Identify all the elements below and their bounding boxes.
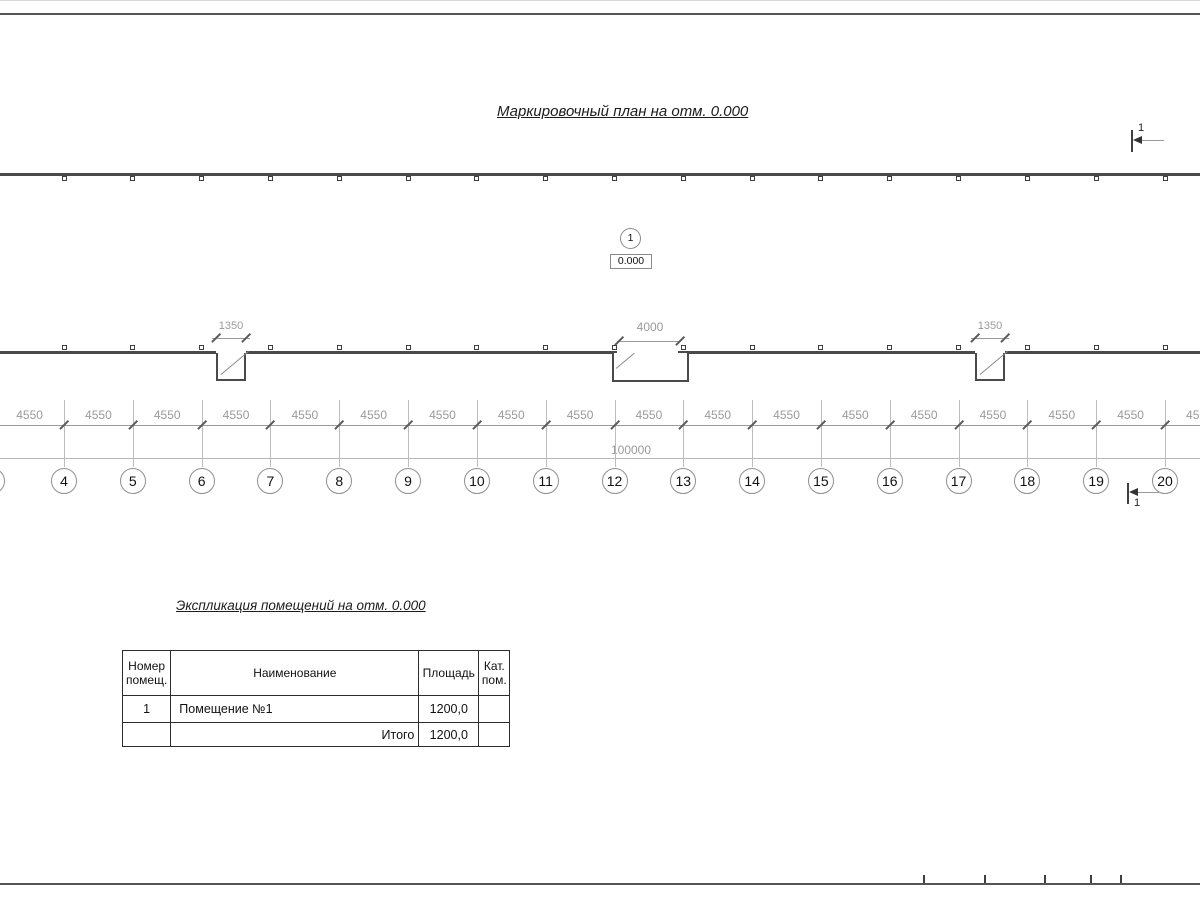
bay-dimension-label: 4550 bbox=[352, 408, 396, 422]
axis-extension-line bbox=[1027, 400, 1028, 467]
axis-extension-line bbox=[683, 400, 684, 467]
column-mark-top bbox=[62, 176, 67, 181]
column-mark-top bbox=[750, 176, 755, 181]
bay-dimension-label: 4550 bbox=[8, 408, 52, 422]
bottom-wall-segment bbox=[678, 351, 975, 354]
bay-dimension-label: 4550 bbox=[833, 408, 877, 422]
axis-bubble: 7 bbox=[257, 468, 283, 494]
axis-extension-line bbox=[477, 400, 478, 467]
cell-empty bbox=[123, 723, 171, 747]
opening-1-dim-label: 1350 bbox=[211, 320, 251, 332]
cell-room-name: Помещение №1 bbox=[171, 696, 419, 723]
axis-bubble: 9 bbox=[395, 468, 421, 494]
bay-dimension-label: 4550 bbox=[696, 408, 740, 422]
top-wall bbox=[0, 173, 1200, 176]
bay-dimension-label: 4550 bbox=[145, 408, 189, 422]
column-mark-top bbox=[268, 176, 273, 181]
bottom-wall-segment bbox=[246, 351, 617, 354]
header-area: Площадь bbox=[419, 651, 479, 696]
bay-dimension-label: 4550 bbox=[76, 408, 120, 422]
frame-bottom-line bbox=[0, 883, 1200, 885]
axis-extension-line bbox=[202, 400, 203, 467]
bottom-wall-segment bbox=[1005, 351, 1200, 354]
column-mark-bottom bbox=[268, 345, 273, 350]
axis-extension-line bbox=[408, 400, 409, 467]
axis-bubble: 18 bbox=[1014, 468, 1040, 494]
drawing-sheet: Маркировочный план на отм. 0.000 1 1 0.0… bbox=[0, 0, 1200, 900]
axis-extension-line bbox=[615, 400, 616, 467]
bay-dimension-label: 4550 bbox=[489, 408, 533, 422]
axis-bubble: 13 bbox=[670, 468, 696, 494]
column-mark-bottom bbox=[543, 345, 548, 350]
axis-extension-line bbox=[546, 400, 547, 467]
axis-extension-line bbox=[339, 400, 340, 467]
column-mark-bottom bbox=[406, 345, 411, 350]
axis-extension-line bbox=[959, 400, 960, 467]
column-mark-bottom bbox=[62, 345, 67, 350]
sheet-top-edge bbox=[0, 0, 1200, 1]
column-mark-bottom bbox=[818, 345, 823, 350]
axis-extension-line bbox=[1165, 400, 1166, 467]
axis-bubble: 17 bbox=[946, 468, 972, 494]
axis-bubble: 14 bbox=[739, 468, 765, 494]
axis-bubble: 19 bbox=[1083, 468, 1109, 494]
axis-extension-line bbox=[270, 400, 271, 467]
table-row: 1 Помещение №1 1200,0 bbox=[123, 696, 510, 723]
axis-bubble-partial bbox=[0, 468, 5, 494]
opening-2-dim-label: 4000 bbox=[628, 320, 672, 334]
frame-tick bbox=[923, 875, 925, 883]
bay-dimension-label: 4550 bbox=[765, 408, 809, 422]
axis-extension-line bbox=[752, 400, 753, 467]
bay-dimension-label: 4550 bbox=[558, 408, 602, 422]
frame-top-line bbox=[0, 13, 1200, 15]
header-room-number: Номер помещ. bbox=[123, 651, 171, 696]
column-mark-bottom bbox=[1163, 345, 1168, 350]
axis-bubble: 5 bbox=[120, 468, 146, 494]
bay-dimension-label: 4550 bbox=[283, 408, 327, 422]
header-name: Наименование bbox=[171, 651, 419, 696]
column-mark-bottom bbox=[199, 345, 204, 350]
frame-tick bbox=[1090, 875, 1092, 883]
column-mark-bottom bbox=[337, 345, 342, 350]
frame-tick bbox=[984, 875, 986, 883]
column-mark-bottom bbox=[130, 345, 135, 350]
opening-3-dim-label: 1350 bbox=[970, 320, 1010, 332]
room-elevation-box: 0.000 bbox=[610, 254, 652, 269]
spec-table-title: Экспликация помещений на отм. 0.000 bbox=[176, 598, 426, 613]
room-number-bubble: 1 bbox=[620, 228, 641, 249]
column-mark-bottom bbox=[612, 345, 617, 350]
column-mark-bottom bbox=[681, 345, 686, 350]
column-mark-top bbox=[681, 176, 686, 181]
column-mark-bottom bbox=[1025, 345, 1030, 350]
column-mark-top bbox=[199, 176, 204, 181]
axis-extension-line bbox=[821, 400, 822, 467]
column-mark-bottom bbox=[474, 345, 479, 350]
column-mark-bottom bbox=[1094, 345, 1099, 350]
column-mark-bottom bbox=[887, 345, 892, 350]
column-mark-top bbox=[474, 176, 479, 181]
cell-total-area: 1200,0 bbox=[419, 723, 479, 747]
section-arrow-left-icon bbox=[1129, 488, 1138, 496]
total-dimension-line bbox=[0, 458, 1200, 459]
column-mark-top bbox=[543, 176, 548, 181]
frame-tick bbox=[1120, 875, 1122, 883]
section-marker-bottom-label: 1 bbox=[1134, 497, 1140, 509]
frame-tick bbox=[1044, 875, 1046, 883]
axis-bubble: 15 bbox=[808, 468, 834, 494]
bay-dimension-label: 4550 bbox=[971, 408, 1015, 422]
bay-dimension-label: 4550 bbox=[902, 408, 946, 422]
axis-extension-line bbox=[133, 400, 134, 467]
cell-room-category bbox=[479, 696, 510, 723]
axis-bubble: 6 bbox=[189, 468, 215, 494]
axis-bubble: 16 bbox=[877, 468, 903, 494]
bay-dimension-label: 4550 bbox=[214, 408, 258, 422]
column-mark-top bbox=[956, 176, 961, 181]
axis-bubble: 8 bbox=[326, 468, 352, 494]
bay-dimension-label: 4550 bbox=[1177, 408, 1200, 422]
axis-bubble: 10 bbox=[464, 468, 490, 494]
bay-dimension-label: 4550 bbox=[420, 408, 464, 422]
axis-extension-line bbox=[890, 400, 891, 467]
cell-empty bbox=[479, 723, 510, 747]
column-mark-bottom bbox=[956, 345, 961, 350]
table-total-row: Итого 1200,0 bbox=[123, 723, 510, 747]
column-mark-top bbox=[1094, 176, 1099, 181]
cell-room-number: 1 bbox=[123, 696, 171, 723]
plan-title: Маркировочный план на отм. 0.000 bbox=[497, 103, 748, 120]
column-mark-top bbox=[1163, 176, 1168, 181]
cell-room-area: 1200,0 bbox=[419, 696, 479, 723]
bay-dimension-line bbox=[0, 425, 1200, 426]
bay-dimension-label: 4550 bbox=[1109, 408, 1153, 422]
axis-bubble: 4 bbox=[51, 468, 77, 494]
cell-total-label: Итого bbox=[171, 723, 419, 747]
column-mark-top bbox=[887, 176, 892, 181]
column-mark-top bbox=[1025, 176, 1030, 181]
column-mark-top bbox=[406, 176, 411, 181]
bay-dimension-label: 4550 bbox=[627, 408, 671, 422]
room-spec-table: Номер помещ. Наименование Площадь Кат. п… bbox=[122, 650, 510, 747]
axis-extension-line bbox=[1096, 400, 1097, 467]
column-mark-top bbox=[130, 176, 135, 181]
axis-bubble: 11 bbox=[533, 468, 559, 494]
bottom-wall-segment bbox=[0, 351, 216, 354]
gate-niche bbox=[612, 353, 689, 382]
column-mark-bottom bbox=[750, 345, 755, 350]
total-dimension-label: 100000 bbox=[591, 443, 671, 457]
column-mark-top bbox=[337, 176, 342, 181]
axis-bubble: 20 bbox=[1152, 468, 1178, 494]
column-mark-top bbox=[612, 176, 617, 181]
axis-extension-line bbox=[64, 400, 65, 467]
column-mark-top bbox=[818, 176, 823, 181]
bay-dimension-label: 4550 bbox=[1040, 408, 1084, 422]
section-marker-top-label: 1 bbox=[1138, 122, 1144, 134]
header-category: Кат. пом. bbox=[479, 651, 510, 696]
table-header-row: Номер помещ. Наименование Площадь Кат. п… bbox=[123, 651, 510, 696]
section-arrow-left-icon bbox=[1133, 136, 1142, 144]
axis-bubble: 12 bbox=[602, 468, 628, 494]
